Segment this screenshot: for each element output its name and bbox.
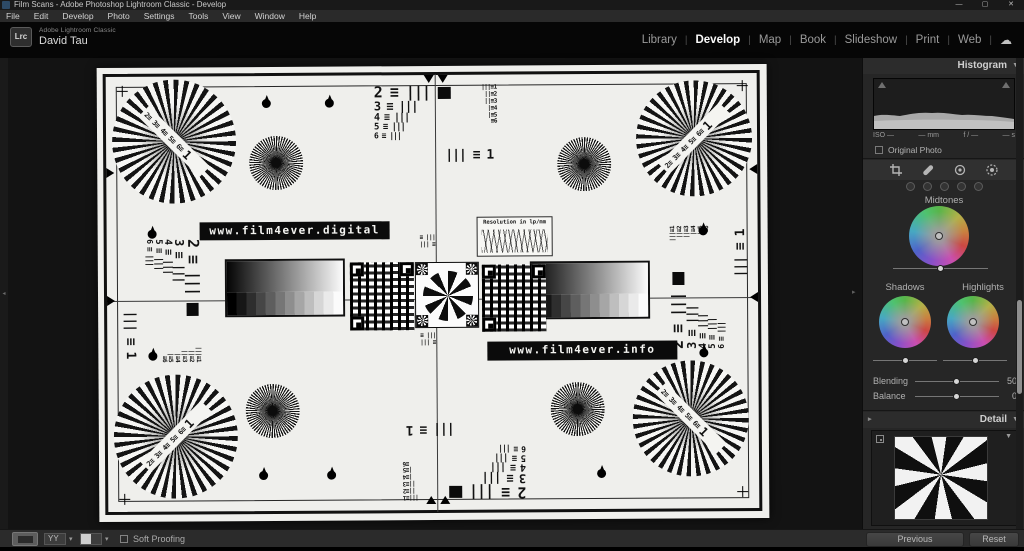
black-patch xyxy=(438,87,451,99)
module-separator: | xyxy=(748,35,751,46)
detail-title: Detail xyxy=(980,412,1007,428)
mini-wedge-column: |||≡1 ||≡2 ||≡3 |≡4 |≡5 ≡6 xyxy=(159,346,200,362)
midtones-luminance-slider[interactable] xyxy=(893,264,988,273)
soft-proofing-checkbox[interactable] xyxy=(120,535,128,543)
edge-triangle-right xyxy=(750,292,758,302)
histogram-title: Histogram xyxy=(958,58,1007,74)
wedge-footer: ||| ≡ 1 xyxy=(733,230,748,278)
develop-right-panel: Histogram ▼ ISO — — mm f / — — s Origina… xyxy=(862,58,1024,530)
wedge-rows: 2 ≡ |||3 ≡ |||4 ≡ |||5 ≡ |||6 ≡ ||| xyxy=(374,85,431,140)
lrc-logo: Lrc xyxy=(10,27,32,47)
detail-panel-header[interactable]: ▸ Detail ▼ xyxy=(863,412,1024,428)
loupe-view-button[interactable] xyxy=(12,532,38,546)
exif-iso: ISO — xyxy=(873,132,894,139)
left-panel-collapse-rail[interactable]: ◂ xyxy=(0,58,8,530)
grayscale-wedge-right xyxy=(530,261,650,320)
blending-slider-row[interactable]: Blending 50 xyxy=(873,376,1017,386)
midtones-label: Midtones xyxy=(863,195,1024,206)
bell-marker xyxy=(259,467,268,480)
radial-star xyxy=(249,136,303,190)
balance-label: Balance xyxy=(873,391,915,401)
soft-proofing-toggle[interactable]: Soft Proofing xyxy=(120,534,185,544)
bell-marker xyxy=(148,226,157,239)
red-eye-icon[interactable] xyxy=(953,163,967,177)
wedge-rows: 2 ≡ |||3 ≡ |||4 ≡ |||5 ≡ |||6 ≡ ||| xyxy=(671,292,726,349)
bell-marker xyxy=(325,95,334,108)
menu-window[interactable]: Window xyxy=(255,10,285,22)
menu-file[interactable]: File xyxy=(6,10,20,22)
menu-develop[interactable]: Develop xyxy=(62,10,93,22)
edge-triangle-top xyxy=(424,75,434,83)
right-panel-collapse-arrow[interactable]: ▸ xyxy=(852,288,856,296)
bell-marker xyxy=(699,222,708,235)
blending-value: 50 xyxy=(999,376,1017,386)
qr-pattern-right xyxy=(482,264,546,331)
filmstrip-collapsed-bar[interactable] xyxy=(0,547,1024,551)
radial-star xyxy=(557,137,611,191)
color-grading-range-buttons[interactable] xyxy=(863,182,1024,191)
module-separator: | xyxy=(905,35,908,46)
shadows-color-wheel[interactable] xyxy=(879,296,931,348)
minimize-button[interactable]: — xyxy=(946,0,972,10)
resolution-cluster-left: 2 ≡ |||3 ≡ |||4 ≡ |||5 ≡ |||6 ≡ ||| |||≡… xyxy=(120,239,201,364)
histogram-panel-header[interactable]: Histogram ▼ xyxy=(863,58,1024,74)
crop-icon[interactable] xyxy=(889,163,903,177)
original-photo-checkbox[interactable] xyxy=(875,146,883,154)
module-separator: | xyxy=(947,35,950,46)
banner-film4ever-digital: www.film4ever.digital xyxy=(200,221,390,240)
fan-numbers: 2≡ 3≡ 4≡ 5≡ 6≡ xyxy=(145,425,187,468)
menu-help[interactable]: Help xyxy=(299,10,316,22)
highlights-label: Highlights xyxy=(949,282,1017,293)
panel-solo-marker: ▸ xyxy=(868,412,872,428)
module-separator: | xyxy=(789,35,792,46)
mini-wedge-column: |||≡1 ||≡2 ||≡3 |≡4 |≡5 ≡6 xyxy=(403,459,419,500)
step-strip xyxy=(532,294,648,317)
resolution-cluster-top: 2 ≡ |||3 ≡ |||4 ≡ |||5 ≡ |||6 ≡ ||| |||≡… xyxy=(374,85,499,166)
edge-triangle-left xyxy=(107,296,115,306)
histogram-curve xyxy=(874,79,1014,129)
midtones-color-wheel[interactable] xyxy=(909,206,969,266)
photo-canvas-test-chart[interactable]: 2≡ 3≡ 4≡ 5≡ 6≡ 1 2≡ 3≡ 4≡ 5≡ 6≡ 1 2≡ 3≡ … xyxy=(97,64,770,522)
bell-marker xyxy=(327,467,336,480)
black-patch xyxy=(449,486,462,498)
center-pinwheel xyxy=(415,262,479,328)
before-after-left-right-button[interactable]: ▾ xyxy=(44,532,73,546)
radial-star xyxy=(551,382,605,436)
app-name-label: Adobe Lightroom Classic xyxy=(39,27,116,34)
radial-star xyxy=(246,384,300,438)
identity-plate: Lrc Adobe Lightroom Classic David Tau xyxy=(10,27,116,47)
banner-film4ever-info: www.film4ever.info xyxy=(487,341,677,361)
module-separator: | xyxy=(685,35,688,46)
siemens-star-top-left: 2≡ 3≡ 4≡ 5≡ 6≡ 1 xyxy=(112,79,237,204)
menu-view[interactable]: View xyxy=(222,10,240,22)
wedge-footer: ||| ≡ 1 xyxy=(407,422,455,437)
gradient-strip xyxy=(532,263,648,295)
cloud-sync-icon[interactable]: ☁ xyxy=(1000,33,1012,47)
menu-edit[interactable]: Edit xyxy=(34,10,49,22)
scrollbar-thumb[interactable] xyxy=(1017,300,1022,394)
registration-cross xyxy=(737,486,748,497)
shadows-label: Shadows xyxy=(871,282,939,293)
black-patch xyxy=(672,272,684,285)
resolution-cluster-bottom: 2 ≡ |||3 ≡ |||4 ≡ |||5 ≡ |||6 ≡ ||| |||≡… xyxy=(401,419,526,500)
qr-pattern-left xyxy=(350,262,414,330)
registration-cross xyxy=(117,86,128,97)
bell-marker xyxy=(699,344,708,357)
split-view-icon xyxy=(80,533,102,545)
edge-triangle-left xyxy=(106,168,114,178)
mini-bars-top: ≡ ||| ||| ≡ xyxy=(420,234,436,248)
tool-strip xyxy=(863,160,1024,180)
title-bar: Film Scans - Adobe Photoshop Lightroom C… xyxy=(0,0,1024,10)
before-after-icon xyxy=(44,533,66,545)
module-separator: | xyxy=(834,35,837,46)
balance-value: 0 xyxy=(999,391,1017,401)
exif-aperture: f / — xyxy=(963,132,978,139)
resolution-lpmm-title: Resolution in lp/mm xyxy=(478,219,552,225)
resolution-cluster-right: 2 ≡ |||3 ≡ |||4 ≡ |||5 ≡ |||6 ≡ ||| |||≡… xyxy=(670,224,751,349)
close-button[interactable]: ✕ xyxy=(998,0,1024,10)
resolution-lpmm-box: Resolution in lp/mm xyxy=(477,216,553,256)
edge-triangle-top xyxy=(438,75,448,83)
fan-numbers: 2≡ 3≡ 4≡ 5≡ 6≡ xyxy=(143,111,186,153)
black-patch xyxy=(187,303,199,316)
bell-marker xyxy=(262,95,271,108)
wedge-footer: ||| ≡ 1 xyxy=(445,148,493,163)
module-web[interactable]: Web xyxy=(958,34,981,46)
soft-proofing-label: Soft Proofing xyxy=(133,534,185,544)
registration-cross xyxy=(119,494,130,505)
menu-bar: File Edit Develop Photo Settings Tools V… xyxy=(0,10,1024,22)
right-panel-scrollbar[interactable] xyxy=(1016,58,1023,530)
edge-triangle-right xyxy=(749,164,757,174)
module-map[interactable]: Map xyxy=(759,34,781,46)
bell-marker xyxy=(597,465,606,478)
detail-preview-disclosure[interactable]: ▼ xyxy=(1005,433,1012,440)
fan-numbers: 2≡ 3≡ 4≡ 5≡ 6≡ xyxy=(663,127,705,170)
wedge-rows: 2 ≡ |||3 ≡ |||4 ≡ |||5 ≡ |||6 ≡ ||| xyxy=(470,444,527,499)
siemens-star-bottom-left: 2≡ 3≡ 4≡ 5≡ 6≡ 1 xyxy=(113,374,238,499)
maximize-button[interactable]: ▢ xyxy=(972,0,998,10)
step-strip xyxy=(227,292,343,315)
blending-label: Blending xyxy=(873,376,915,386)
highlights-color-wheel[interactable] xyxy=(947,296,999,348)
edge-triangle-bottom xyxy=(440,496,450,504)
wedge-rows: 2 ≡ |||3 ≡ |||4 ≡ |||5 ≡ |||6 ≡ ||| xyxy=(145,239,200,296)
detail-preview-box: ▼ xyxy=(871,430,1017,526)
resolution-lpmm-lines xyxy=(482,229,548,252)
module-develop[interactable]: Develop xyxy=(695,34,740,46)
detail-preview-star[interactable] xyxy=(894,436,988,520)
detail-target-icon[interactable] xyxy=(876,435,884,443)
histogram-display[interactable] xyxy=(873,78,1015,130)
previous-button[interactable]: Previous xyxy=(866,532,964,547)
user-name-label: David Tau xyxy=(39,35,116,47)
module-book[interactable]: Book xyxy=(800,34,826,46)
shadows-luminance-slider[interactable] xyxy=(873,356,937,365)
menu-photo[interactable]: Photo xyxy=(108,10,130,22)
original-photo-toggle[interactable]: Original Photo xyxy=(875,145,942,155)
original-photo-label: Original Photo xyxy=(888,145,942,155)
edge-triangle-bottom xyxy=(426,496,436,504)
fan-numbers: 2≡ 3≡ 4≡ 5≡ 6≡ xyxy=(660,387,703,429)
module-picker: Library | Develop | Map | Book | Slidesh… xyxy=(642,33,1012,47)
lightroom-window: Film Scans - Adobe Photoshop Lightroom C… xyxy=(0,0,1024,551)
masking-icon[interactable] xyxy=(985,163,999,177)
mini-wedge-column: |||≡1 ||≡2 ||≡3 |≡4 |≡5 ≡6 xyxy=(481,85,497,126)
mini-bars-bottom: ≡ ||| ||| ≡ xyxy=(420,332,436,346)
balance-slider-row[interactable]: Balance 0 xyxy=(873,391,1017,401)
siemens-star-bottom-right: 2≡ 3≡ 4≡ 5≡ 6≡ 1 xyxy=(632,360,749,477)
module-separator: | xyxy=(989,35,992,46)
highlights-luminance-slider[interactable] xyxy=(943,356,1007,365)
reset-button[interactable]: Reset xyxy=(969,532,1019,547)
grayscale-wedge-left xyxy=(225,259,345,318)
module-print[interactable]: Print xyxy=(916,34,940,46)
bell-marker xyxy=(148,348,157,361)
window-title: Film Scans - Adobe Photoshop Lightroom C… xyxy=(14,0,226,10)
exif-focal-length: — mm xyxy=(918,132,939,139)
registration-cross xyxy=(737,80,748,91)
header-bar: Lrc Adobe Lightroom Classic David Tau Li… xyxy=(0,22,1024,58)
module-slideshow[interactable]: Slideshow xyxy=(845,34,897,46)
healing-icon[interactable] xyxy=(921,163,935,177)
exif-shutter: — s xyxy=(1003,132,1015,139)
wedge-footer: ||| ≡ 1 xyxy=(123,311,138,359)
before-after-split-button[interactable]: ▾ xyxy=(80,532,109,546)
menu-settings[interactable]: Settings xyxy=(144,10,175,22)
exif-info-row: ISO — — mm f / — — s xyxy=(873,132,1015,139)
gradient-strip xyxy=(227,261,343,293)
app-icon xyxy=(2,1,10,9)
menu-tools[interactable]: Tools xyxy=(188,10,208,22)
bottom-toolbar: ▾ ▾ Soft Proofing Previous Reset xyxy=(0,529,1024,547)
module-library[interactable]: Library xyxy=(642,34,677,46)
siemens-star-top-right: 2≡ 3≡ 4≡ 5≡ 6≡ 1 xyxy=(636,80,753,197)
